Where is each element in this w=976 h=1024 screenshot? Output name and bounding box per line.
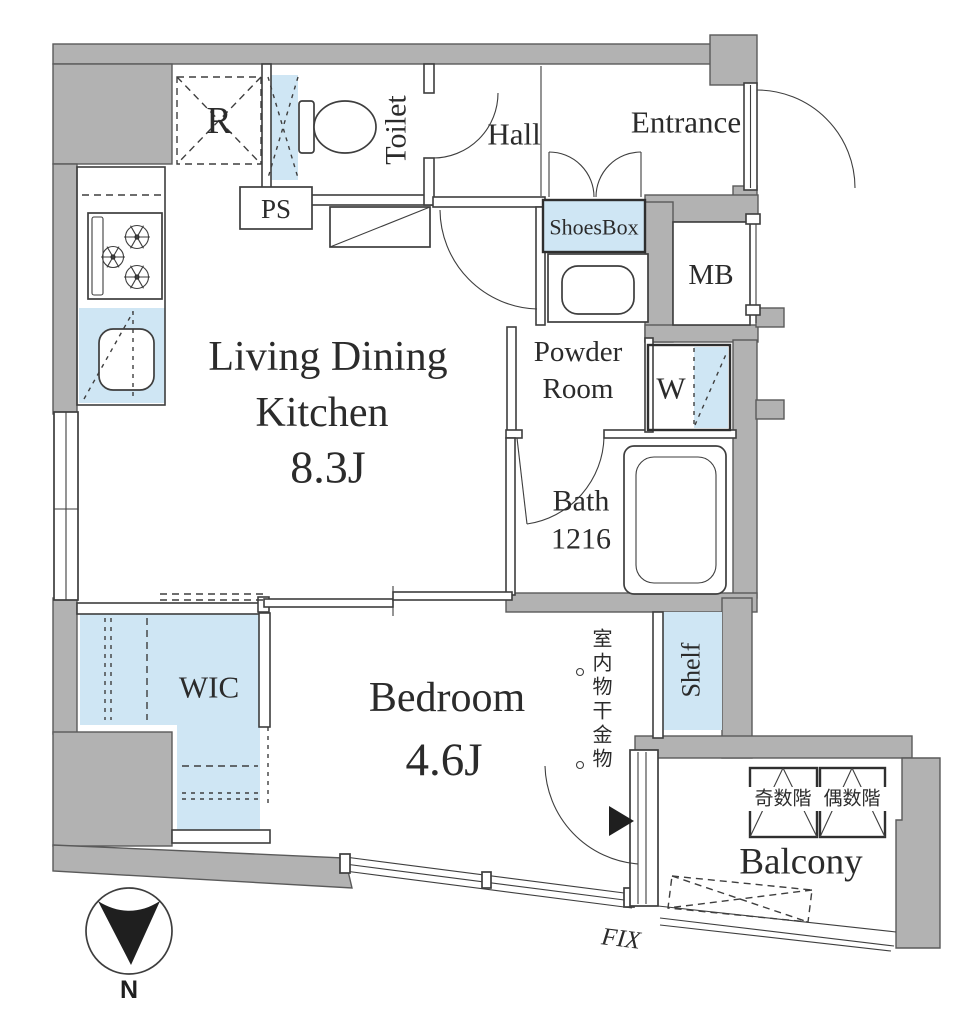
ldk-window (54, 412, 78, 600)
label-compass-north: N (120, 976, 138, 1004)
balcony-door (545, 750, 658, 906)
label-ldk-1: Living Dining (208, 334, 447, 380)
label-laundry-hook: 室内物干金物 (590, 628, 610, 772)
kitchen-sink (99, 329, 154, 390)
label-ldk-2: Kitchen (256, 390, 389, 436)
entrance-door (744, 83, 855, 190)
stove (88, 213, 162, 299)
label-bath-size: 1216 (551, 523, 611, 556)
label-ldk-size: 8.3J (290, 442, 365, 493)
label-powder-room-2: Room (543, 373, 614, 405)
door-swing-arc (545, 766, 638, 864)
label-hatch-odd: 奇数階 (754, 788, 811, 810)
bath-room (517, 437, 726, 594)
label-toilet: Toilet (380, 95, 413, 165)
label-fix-window: FIX (599, 923, 644, 955)
label-powder-room-1: Powder (534, 336, 623, 368)
balcony (658, 876, 896, 951)
label-shoes-box: ShoesBox (549, 215, 638, 240)
washbasin (548, 254, 648, 322)
label-wic: WIC (179, 670, 239, 705)
ldk-door-arc (440, 210, 537, 309)
floor-plan-drawing: R PS Toilet Hall Entrance ShoesBox MB Po… (0, 0, 976, 1024)
label-balcony: Balcony (739, 842, 863, 883)
label-hatch-even: 偶数階 (823, 788, 880, 810)
balcony-pillar (896, 758, 940, 948)
floor-plan: R PS Toilet Hall Entrance ShoesBox MB Po… (0, 0, 976, 1024)
label-bath: Bath (553, 485, 610, 518)
door-swing-arc (757, 90, 855, 188)
bath-door-leaf (517, 438, 527, 524)
bathtub (624, 446, 726, 594)
compass-icon (86, 888, 172, 974)
toilet-bowl (314, 101, 376, 153)
label-meter-box: MB (688, 259, 733, 291)
hall-counter (330, 207, 430, 247)
wall-pilaster (756, 400, 784, 419)
label-pipe-space: PS (261, 194, 291, 224)
label-shelf: Shelf (677, 642, 706, 697)
label-bedroom: Bedroom (369, 675, 526, 721)
label-washer: W (656, 371, 686, 406)
toilet-tank (299, 101, 314, 153)
label-refrigerator: R (206, 100, 232, 142)
fix-window (340, 854, 634, 908)
label-hall: Hall (487, 117, 540, 152)
laundry-hook-dot (577, 762, 584, 769)
laundry-hook-dot (577, 669, 584, 676)
label-entrance: Entrance (631, 105, 741, 140)
toilet-fixture (299, 101, 376, 153)
label-bedroom-size: 4.6J (405, 734, 482, 786)
balcony-railing (660, 918, 894, 946)
